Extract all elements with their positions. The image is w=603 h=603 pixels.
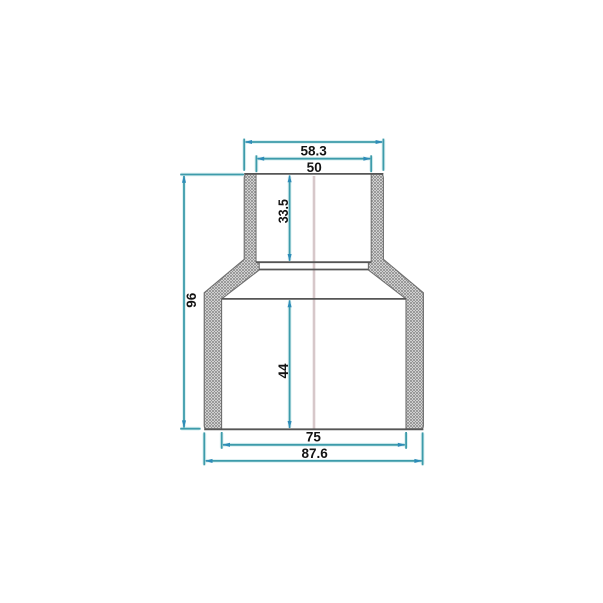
svg-text:87.6: 87.6 bbox=[301, 446, 328, 461]
svg-text:96: 96 bbox=[184, 292, 199, 308]
svg-text:44: 44 bbox=[276, 363, 291, 379]
svg-text:58.3: 58.3 bbox=[300, 143, 327, 158]
svg-text:75: 75 bbox=[306, 429, 322, 444]
svg-text:33.5: 33.5 bbox=[276, 199, 292, 223]
svg-text:50: 50 bbox=[307, 160, 322, 175]
